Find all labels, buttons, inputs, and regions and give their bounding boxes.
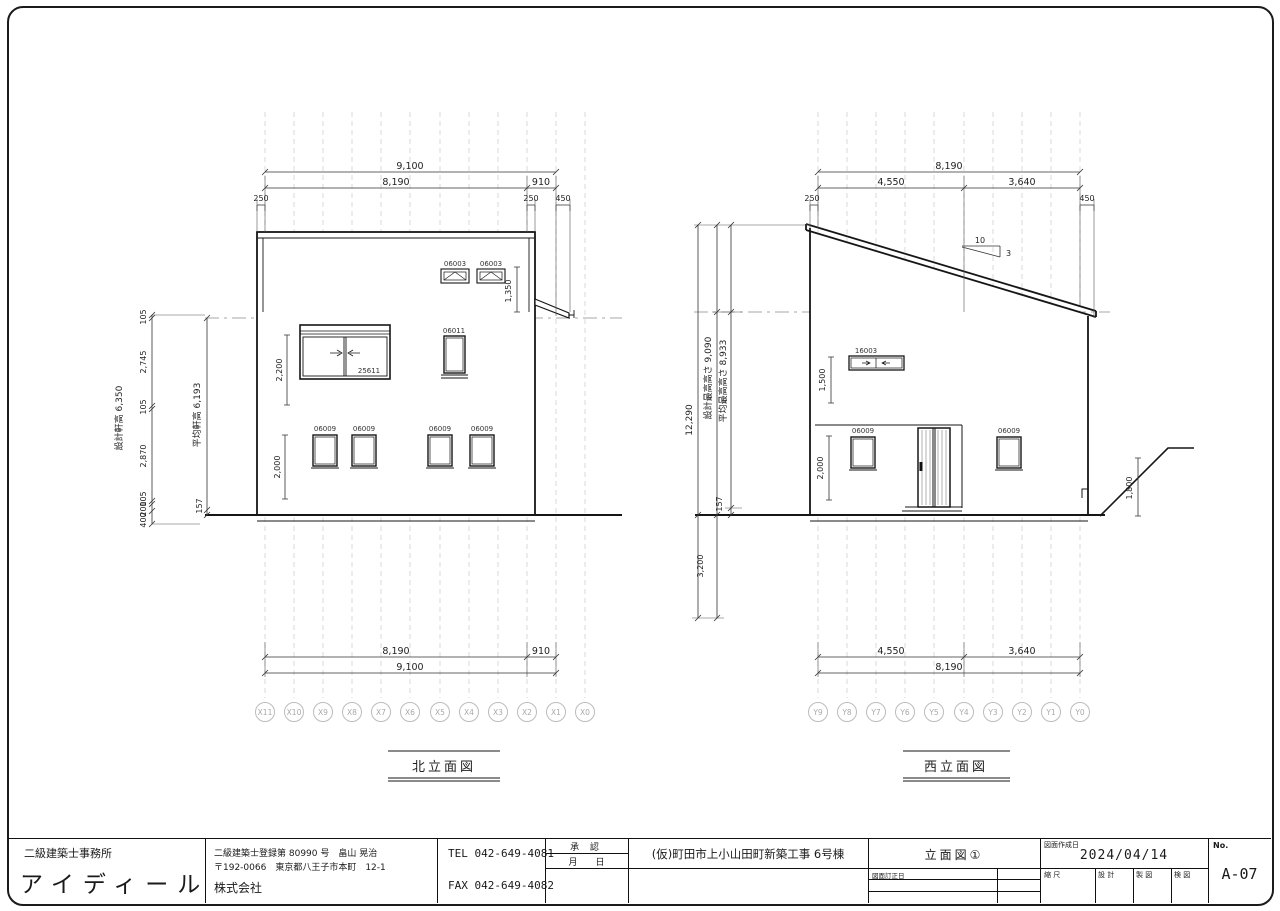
- grid-label: X9: [318, 708, 328, 717]
- dim-label: 2,000: [816, 457, 825, 480]
- dim-label: 2,870: [139, 445, 148, 468]
- window-label: 06003: [444, 260, 466, 268]
- dim-label: 8,190: [935, 662, 962, 673]
- tb-line: [868, 891, 1040, 892]
- tb-divider: [437, 839, 438, 903]
- fax-number: FAX 042-649-4082: [448, 879, 554, 892]
- dim-label: 450: [555, 194, 570, 203]
- tb-divider: [1095, 868, 1096, 903]
- tb-divider: [1133, 868, 1134, 903]
- dim-label: 4,550: [877, 177, 904, 188]
- created-date: 2024/04/14: [1040, 848, 1208, 863]
- height-label: 設計軒高 6,350: [113, 385, 125, 450]
- grid-label: Y9: [812, 708, 823, 717]
- dim-label: 12,290: [685, 404, 695, 436]
- dim-label: 910: [532, 646, 550, 657]
- window-label: 06009: [314, 425, 336, 433]
- window-label: 06009: [353, 425, 375, 433]
- grid-label: Y3: [987, 708, 998, 717]
- revised-date-label: 図面訂正日: [872, 870, 905, 880]
- window-label: 06009: [998, 427, 1020, 435]
- dim-label: 105: [139, 399, 148, 414]
- tb-line: [545, 868, 628, 869]
- dim-label: 2,745: [139, 351, 148, 374]
- window-label: 25611: [358, 367, 380, 375]
- north-title: 北立面図: [412, 760, 476, 775]
- grid-label: Y4: [958, 708, 969, 717]
- grid-label: X10: [287, 708, 302, 717]
- grid-label: X8: [347, 708, 357, 717]
- west-building: [695, 224, 1194, 521]
- dim-label: 3,640: [1008, 177, 1035, 188]
- grid-label: Y5: [928, 708, 939, 717]
- office-address: 〒192-0066 東京都八王子市本町 12-1: [214, 860, 386, 873]
- grid-label: X7: [376, 708, 386, 717]
- sheet-title: 立面図①: [868, 846, 1040, 863]
- grid-label: X5: [435, 708, 445, 717]
- west-elevation: 10 3 16003 06009 06009: [685, 112, 1194, 781]
- north-elevation: 06003 06003 25611 06011: [113, 112, 622, 781]
- grid-label: Y0: [1074, 708, 1085, 717]
- dim-label: 1,350: [504, 280, 513, 303]
- grid-label: X2: [522, 708, 532, 717]
- sheet-no-label: No.: [1213, 841, 1228, 850]
- dim-label: 250: [804, 194, 819, 203]
- approval-label: 承 認: [545, 840, 628, 853]
- dim-label: 157: [195, 498, 204, 513]
- dim-label: 2,000: [273, 456, 282, 479]
- grid-label: Y7: [870, 708, 881, 717]
- office-name: アイディール: [20, 865, 209, 899]
- dim-label: 250: [253, 194, 268, 203]
- grid-label: Y2: [1016, 708, 1027, 717]
- grid-label: Y6: [899, 708, 910, 717]
- sheet-number: A-07: [1208, 865, 1271, 883]
- office-type: 二級建築士事務所: [24, 845, 112, 861]
- project-name: (仮)町田市上小山田町新築工事 6号棟: [628, 846, 868, 862]
- window-label: 16003: [855, 347, 877, 355]
- grid-label: X1: [551, 708, 561, 717]
- grid-label: X0: [580, 708, 590, 717]
- grid-label: Y8: [841, 708, 852, 717]
- dim-label: 8,190: [382, 177, 409, 188]
- drawing-sheet: 06003 06003 25611 06011: [0, 0, 1280, 911]
- dim-label: 4,550: [877, 646, 904, 657]
- design-label: 設 計: [1098, 870, 1114, 880]
- dim-label: 9,100: [396, 161, 423, 172]
- window-label: 06003: [480, 260, 502, 268]
- tb-line: [628, 868, 1208, 869]
- window-label: 06009: [471, 425, 493, 433]
- grid-label: X6: [405, 708, 415, 717]
- slope-rise-label: 3: [1006, 249, 1011, 258]
- height-label: 平均軒高 6,193: [191, 383, 203, 448]
- grid-label: X3: [493, 708, 503, 717]
- title-block: 二級建築士事務所 アイディール 二級建築士登録第 80990 号 畠山 晃治 〒…: [8, 838, 1271, 903]
- dim-label: 1,500: [818, 369, 827, 392]
- dim-label: 1,800: [1125, 477, 1134, 500]
- height-label: 設計最高高さ 9,090: [702, 336, 714, 419]
- dim-label: 105: [139, 309, 148, 324]
- tb-divider: [997, 868, 998, 903]
- dim-label: 2,200: [275, 359, 284, 382]
- dim-label: 450: [1079, 194, 1094, 203]
- company-suffix: 株式会社: [214, 879, 262, 896]
- scale-label: 縮 尺: [1044, 870, 1060, 880]
- grid-label: X4: [464, 708, 474, 717]
- north-grid-bubbles: X11 X10 X9 X8 X7 X6 X5 X4 X3 X2 X1 X0: [256, 703, 595, 722]
- tb-line: [545, 853, 628, 854]
- height-label: 平均最高高さ 8,933: [717, 340, 729, 423]
- check-label: 検 図: [1174, 870, 1190, 880]
- grid-label: X11: [258, 708, 273, 717]
- tel-number: TEL 042-649-4081: [448, 847, 554, 860]
- roof-slope-marker: [962, 246, 1000, 257]
- dim-label: 910: [532, 177, 550, 188]
- draft-label: 製 図: [1136, 870, 1152, 880]
- elevation-drawings: 06003 06003 25611 06011: [0, 0, 1280, 911]
- dim-label: 3,200: [696, 555, 705, 578]
- window-label: 06011: [443, 327, 465, 335]
- west-grid-bubbles: Y9 Y8 Y7 Y6 Y5 Y4 Y3 Y2 Y1 Y0: [809, 703, 1090, 722]
- dim-label: 3,640: [1008, 646, 1035, 657]
- dim-label: 8,190: [935, 161, 962, 172]
- dim-label: 157: [715, 496, 724, 511]
- north-building: [205, 232, 622, 521]
- month-day-label: 月 日: [545, 855, 628, 868]
- grid-label: Y1: [1045, 708, 1056, 717]
- window-label: 06009: [852, 427, 874, 435]
- dim-label: 400: [139, 512, 148, 527]
- dim-label: 9,100: [396, 662, 423, 673]
- window-label: 06009: [429, 425, 451, 433]
- license-number: 二級建築士登録第 80990 号 畠山 晃治: [214, 846, 377, 859]
- tb-divider: [1171, 868, 1172, 903]
- west-title: 西立面図: [924, 760, 988, 775]
- dim-label: 250: [523, 194, 538, 203]
- slope-run-label: 10: [975, 236, 985, 245]
- dim-label: 8,190: [382, 646, 409, 657]
